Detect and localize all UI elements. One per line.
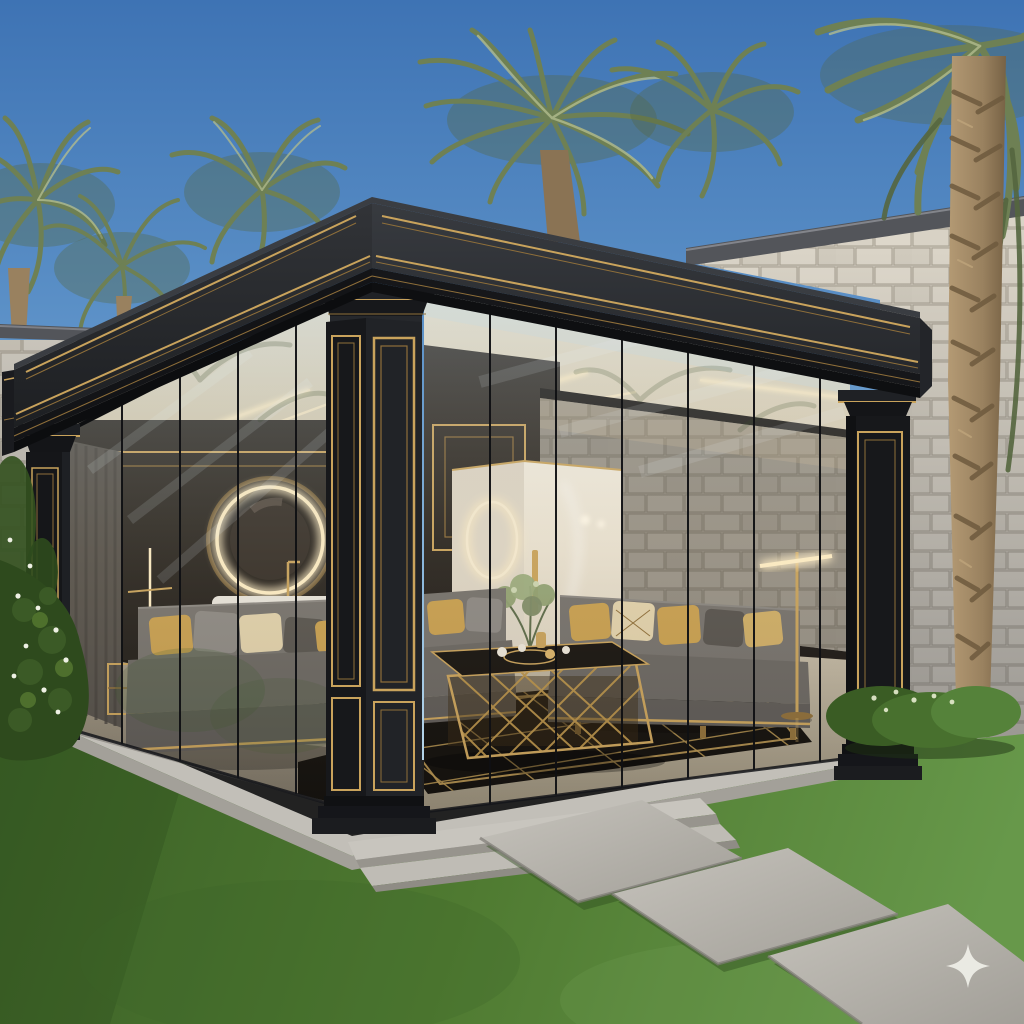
shrub-right bbox=[826, 686, 1021, 759]
scene-canvas bbox=[0, 0, 1024, 1024]
roof-end-cap-right bbox=[920, 318, 932, 398]
corner-column bbox=[312, 288, 436, 834]
roof-end-cap-left bbox=[2, 370, 14, 456]
backyard-pavilion-render bbox=[0, 0, 1024, 1024]
